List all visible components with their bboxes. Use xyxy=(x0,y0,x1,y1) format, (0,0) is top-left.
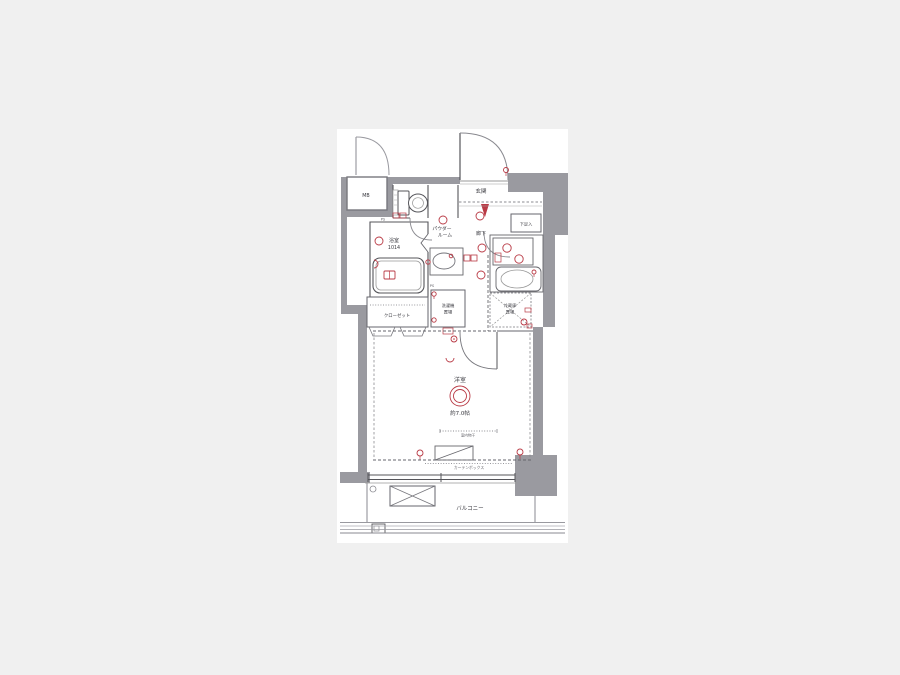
bathroom-folding-door xyxy=(421,234,428,252)
ceiling-light-inner xyxy=(454,390,467,403)
faucet-icon-washer xyxy=(432,292,436,296)
mb-door-arc xyxy=(356,137,389,175)
floorplan-paper: MB PS 玄関 下足入 廊下 パウダー ルーム 浴室 1014 クローゼット … xyxy=(337,129,568,543)
kitchen-counter xyxy=(490,235,543,292)
bathtub-outer xyxy=(373,258,424,293)
vanity-counter xyxy=(430,248,463,275)
wall-right-room xyxy=(533,327,543,467)
label-curtain-box: カーテンボックス xyxy=(454,465,484,470)
screenshot-canvas: MB PS 玄関 下足入 廊下 パウダー ルーム 浴室 1014 クローゼット … xyxy=(0,0,900,675)
label-powder-room-2: ルーム xyxy=(438,233,452,239)
ceiling-light-outer xyxy=(450,386,470,406)
toilet-door-arc xyxy=(410,218,432,240)
switch-icon-1 xyxy=(464,255,470,261)
label-main-room-size: 約7.0帖 xyxy=(450,409,470,417)
label-fridge-1: 冷蔵庫 xyxy=(504,302,517,309)
closet-folding-door-right xyxy=(400,327,426,336)
wall-light-icon-room-right xyxy=(517,449,523,455)
bathtub-inner xyxy=(376,261,421,290)
label-balcony: バルコニー xyxy=(456,505,483,512)
wall-bottom-stub xyxy=(340,472,370,483)
wall-light-icon-room-left xyxy=(417,450,423,456)
toilet-side-panel xyxy=(393,190,398,215)
toilet-tank xyxy=(398,191,409,215)
ceiling-light-icon-powder xyxy=(439,216,447,224)
wall-top-right-block xyxy=(508,173,568,192)
ceiling-light-icon-hall-2 xyxy=(477,271,485,279)
balcony-drain-circle xyxy=(370,486,376,492)
stove-top xyxy=(493,238,533,265)
wall-under-mb xyxy=(347,210,387,217)
label-mb: MB xyxy=(362,193,369,199)
toilet-bowl xyxy=(409,194,428,212)
label-bathroom: 浴室 xyxy=(389,237,399,244)
label-hallway: 廊下 xyxy=(476,230,486,237)
ceiling-light-icon-main-room xyxy=(450,386,470,406)
faucet-icon-sink xyxy=(532,270,536,274)
stove-burner-icon-2 xyxy=(515,255,523,263)
vanity-basin xyxy=(433,253,455,269)
label-washer-2: 置場 xyxy=(444,309,453,316)
wall-column-bottom-right xyxy=(515,455,557,496)
entrance-door xyxy=(460,133,508,217)
entrance-door-arc xyxy=(460,133,508,180)
wall-sensor-icon xyxy=(446,358,454,362)
outlet-icon-fridge xyxy=(521,319,527,325)
label-main-room: 洋室 xyxy=(454,376,466,384)
label-entrance: 玄関 xyxy=(475,187,487,195)
label-powder-room-1: パウダー xyxy=(432,225,451,232)
wall-left-upper xyxy=(341,177,347,313)
closet-folding-door-left xyxy=(369,327,395,336)
room-labels: MB PS 玄関 下足入 廊下 パウダー ルーム 浴室 1014 クローゼット … xyxy=(362,187,533,512)
room-door-arc xyxy=(460,332,497,369)
label-bathroom-size: 1014 xyxy=(388,245,400,251)
wall-right-upper xyxy=(543,191,568,235)
drain-icon-washer xyxy=(432,318,436,322)
label-ps-lower: PS xyxy=(430,284,435,288)
sink-counter xyxy=(496,267,541,291)
ceiling-light-icon-hall-1 xyxy=(478,244,486,252)
switch-icon-2 xyxy=(471,255,477,261)
label-ps-upper: PS xyxy=(381,218,386,222)
outlet-icon-fridge-top xyxy=(525,308,531,312)
ceiling-light-icon-bath xyxy=(375,237,383,245)
wall-right-kitchen xyxy=(543,235,555,327)
meter-box xyxy=(347,137,389,210)
label-washer-1: 洗濯機 xyxy=(442,302,455,309)
label-closet: クローゼット xyxy=(384,312,410,319)
wall-top-middle xyxy=(387,177,460,184)
stove-burner-icon-1 xyxy=(503,244,511,252)
wall-left-lower xyxy=(358,309,367,477)
label-indoor-drying: 室内物干 xyxy=(461,433,476,438)
label-fridge-2: 置場 xyxy=(506,309,515,316)
ceiling-light-icon-entrance xyxy=(476,212,484,220)
bathroom-walls xyxy=(370,222,428,297)
sink-bowl xyxy=(501,270,533,288)
closet-walls xyxy=(367,297,428,327)
floorplan-drawing: MB PS 玄関 下足入 廊下 パウダー ルーム 浴室 1014 クローゼット … xyxy=(337,129,568,543)
circled-mark-room-dot xyxy=(453,338,455,340)
